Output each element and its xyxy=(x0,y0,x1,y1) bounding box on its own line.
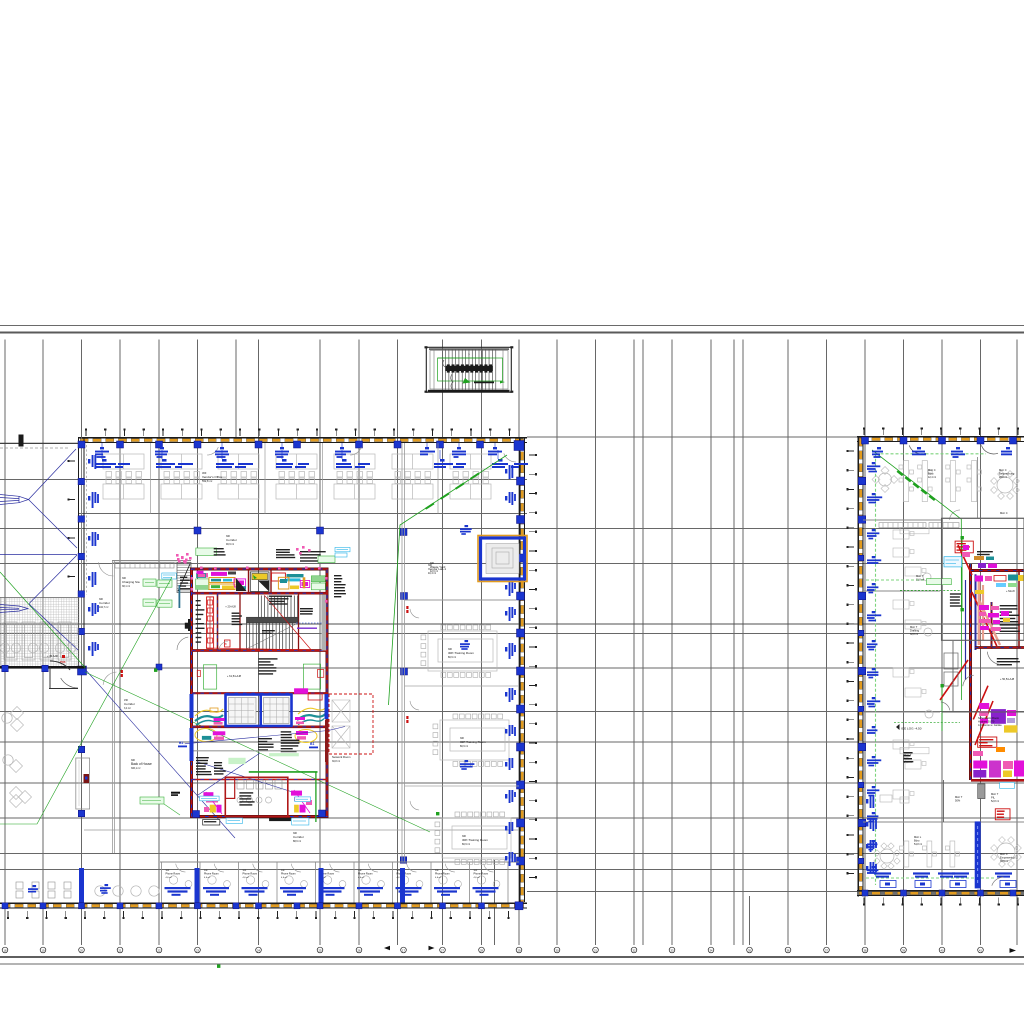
svg-text:+ 61,54-AJ8: + 61,54-AJ8 xyxy=(227,674,242,678)
svg-text:Mstr T: Mstr T xyxy=(991,792,999,796)
svg-text:90,9 m²: 90,9 m² xyxy=(226,543,234,546)
svg-text:Network Room: Network Room xyxy=(332,755,351,759)
svg-text:4,6 m²: 4,6 m² xyxy=(474,876,480,879)
svg-text:32,8 m²: 32,8 m² xyxy=(910,633,918,636)
svg-text:552,8 m²: 552,8 m² xyxy=(202,479,212,483)
svg-text:4,6 m²: 4,6 m² xyxy=(435,876,441,879)
svg-text:4. Chemie w. Geräte: 4. Chemie w. Geräte xyxy=(978,723,1002,727)
svg-text:Back of House: Back of House xyxy=(131,762,152,766)
svg-text:Phone Room: Phone Room xyxy=(435,873,450,876)
svg-text:30P-Training Room: 30P-Training Room xyxy=(462,838,488,842)
svg-text:Vendor Lab-1: Vendor Lab-1 xyxy=(428,567,446,571)
svg-text:Mstr T: Mstr T xyxy=(916,574,924,578)
svg-text:Schematics Room: Schematics Room xyxy=(978,716,999,720)
svg-text:Mstr C: Mstr C xyxy=(1000,852,1008,856)
svg-text:Phone Room: Phone Room xyxy=(166,873,181,876)
svg-text:Besprechung: Besprechung xyxy=(999,472,1015,476)
svg-text:28,8 m²: 28,8 m² xyxy=(999,476,1007,479)
svg-text:B1: B1 xyxy=(179,741,183,745)
svg-text:80,9 m²: 80,9 m² xyxy=(462,843,470,846)
svg-text:Vendor's Office: Vendor's Office xyxy=(202,475,223,479)
svg-text:Phone Room: Phone Room xyxy=(474,873,489,876)
svg-text:Corridor: Corridor xyxy=(226,538,237,542)
svg-text:30P Training Room: 30P Training Room xyxy=(460,740,486,744)
svg-text:+ 50,54-AJ8: + 50,54-AJ8 xyxy=(1000,677,1015,681)
svg-text:+ 20-AJ8: + 20-AJ8 xyxy=(225,605,236,609)
svg-text:ICE LOG -4,50: ICE LOG -4,50 xyxy=(901,727,922,731)
svg-text:Empowering: Empowering xyxy=(1000,856,1015,860)
svg-text:+ Mst.8: + Mst.8 xyxy=(1006,589,1015,593)
svg-text:4,6 m²: 4,6 m² xyxy=(358,876,364,879)
svg-text:Charging Sta: Charging Sta xyxy=(122,580,140,584)
svg-text:4,6 m²: 4,6 m² xyxy=(166,876,172,879)
svg-text:+ 35 AJR: + 35 AJR xyxy=(47,654,58,658)
svg-text:Corridor: Corridor xyxy=(293,835,304,839)
svg-text:Phone Room: Phone Room xyxy=(358,873,373,876)
svg-text:Phone Room: Phone Room xyxy=(243,873,258,876)
svg-text:4,6 m²: 4,6 m² xyxy=(243,876,249,879)
svg-text:80,9 m²: 80,9 m² xyxy=(460,745,468,748)
svg-text:Mstr L: Mstr L xyxy=(914,835,922,839)
svg-text:B1: B1 xyxy=(310,742,314,746)
svg-text:80,9 m²: 80,9 m² xyxy=(448,656,456,659)
svg-text:31,8 m²: 31,8 m² xyxy=(916,579,924,582)
svg-text:52,8 m²: 52,8 m² xyxy=(991,800,999,803)
svg-text:Drafting: Drafting xyxy=(910,629,920,633)
svg-text:Mstr C: Mstr C xyxy=(1000,511,1008,515)
svg-text:Corridor: Corridor xyxy=(124,702,135,706)
svg-text:42,4 m²: 42,4 m² xyxy=(928,476,936,479)
svg-text:4,6 m²: 4,6 m² xyxy=(281,876,287,879)
svg-text:?: ? xyxy=(468,353,470,357)
svg-text:38,1 m²: 38,1 m² xyxy=(122,585,130,588)
svg-text:Hydrant 50/70: Hydrant 50/70 xyxy=(978,720,995,724)
svg-text:102,7 m²: 102,7 m² xyxy=(99,606,109,609)
svg-text:36,9 m²: 36,9 m² xyxy=(1000,860,1008,863)
svg-text:30,8 m²: 30,8 m² xyxy=(332,760,340,763)
svg-text:Mstr T: Mstr T xyxy=(910,625,918,629)
svg-text:B: B xyxy=(225,643,227,646)
svg-text:Mstr C: Mstr C xyxy=(928,468,936,472)
svg-text:Corridor: Corridor xyxy=(99,601,110,605)
svg-text:PIL: PIL xyxy=(991,796,995,800)
svg-text:Büro: Büro xyxy=(928,472,934,476)
svg-text:3,4 m²: 3,4 m² xyxy=(124,707,131,710)
svg-text:50%: 50% xyxy=(955,799,961,803)
svg-text:Phone Room: Phone Room xyxy=(281,873,296,876)
svg-text:Mstr T: Mstr T xyxy=(955,795,963,799)
svg-text:40,4 m²: 40,4 m² xyxy=(428,572,436,575)
svg-text:4,6 m²: 4,6 m² xyxy=(204,876,210,879)
svg-text:306,1 m²: 306,1 m² xyxy=(131,767,141,770)
svg-text:54,8 m²: 54,8 m² xyxy=(914,843,922,846)
svg-text:88,6 m²: 88,6 m² xyxy=(293,840,301,843)
svg-text:Büro: Büro xyxy=(914,839,920,843)
svg-text:Phone Room: Phone Room xyxy=(204,873,219,876)
svg-text:Mstr C: Mstr C xyxy=(999,468,1007,472)
svg-text:30P-Training Room: 30P-Training Room xyxy=(448,651,474,655)
